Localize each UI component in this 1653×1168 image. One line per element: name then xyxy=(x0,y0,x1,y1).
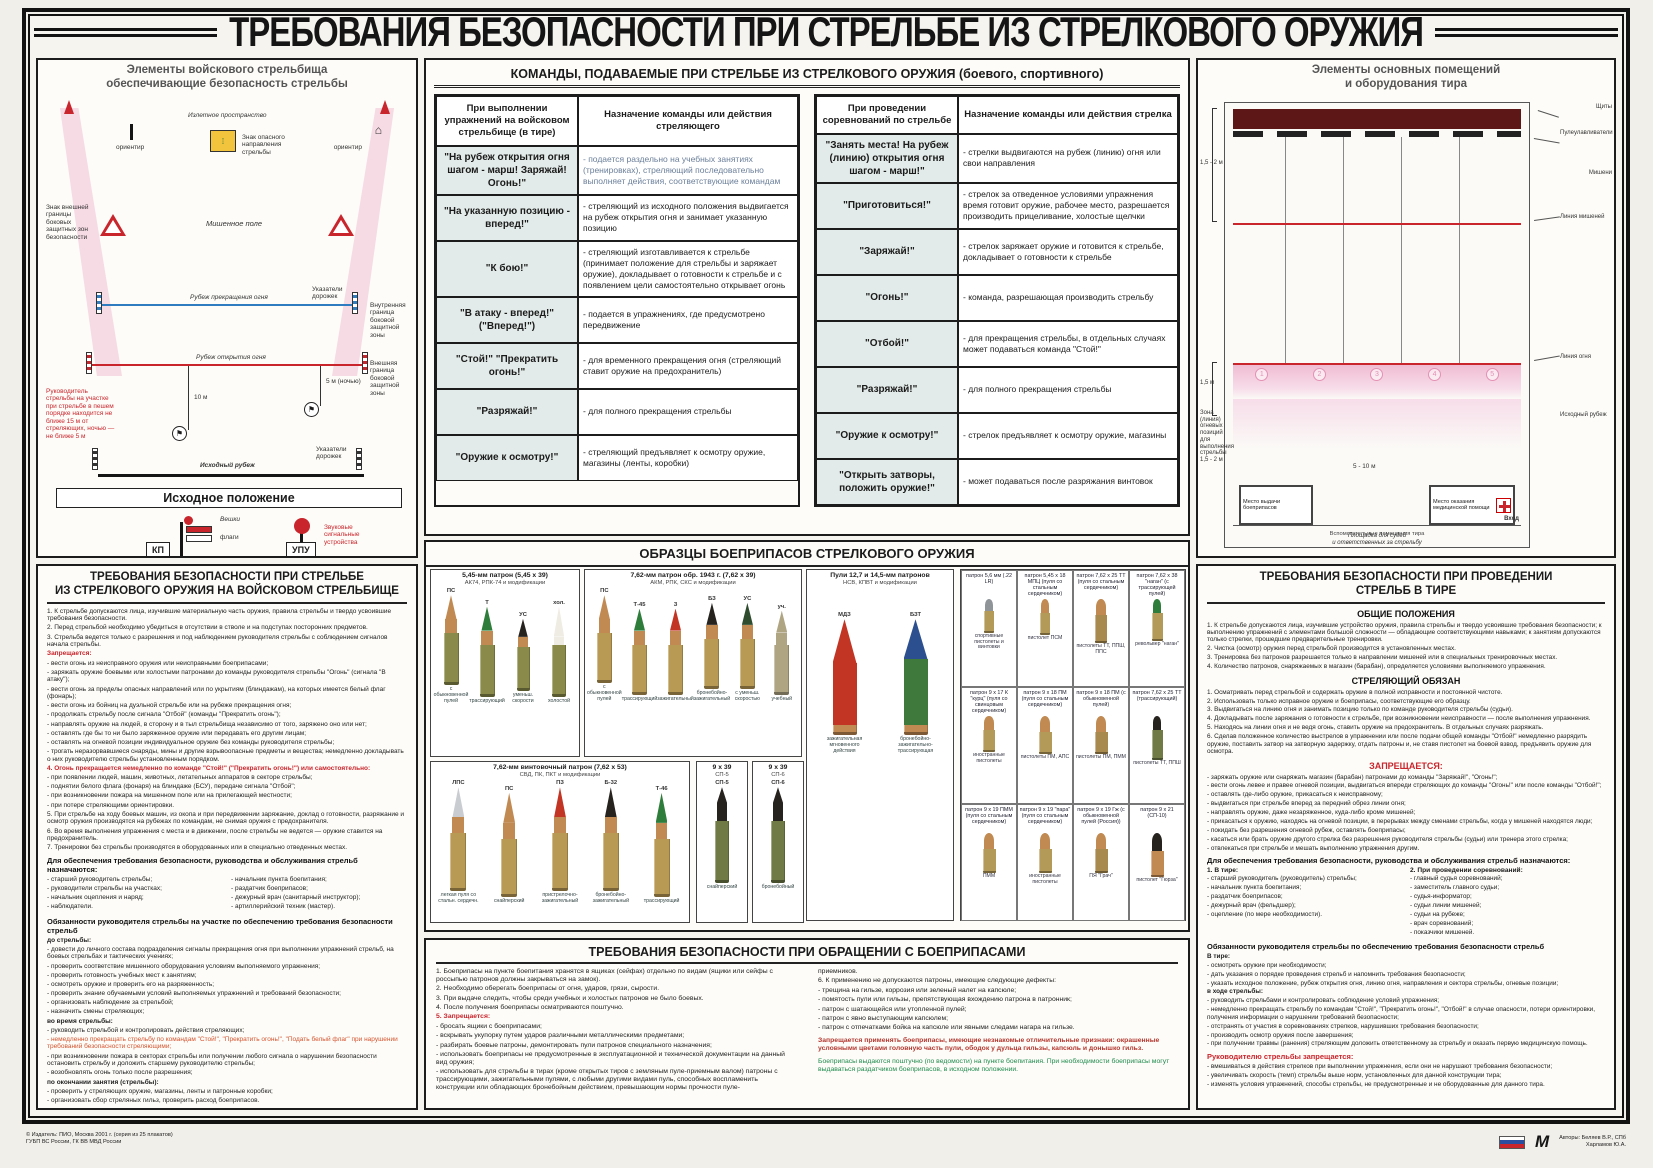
targets-row xyxy=(1233,131,1521,137)
cartridge: СП-5 снайперский xyxy=(699,780,745,891)
ammo-panel-9x39-sp6: 9 х 39 СП-6 СП-6 бронебойный xyxy=(752,761,804,923)
rule-line: 1. К стрельбе допускаются лица, изучивши… xyxy=(47,608,407,623)
duty-line: - назначить смены стреляющих; xyxy=(47,1008,407,1016)
label-start-line: Исходный рубеж xyxy=(200,462,255,469)
label-danger-sign: Знак опасного направления стрельбы xyxy=(242,134,306,156)
range-rules-section: ТРЕБОВАНИЯ БЕЗОПАСНОСТИ ПРИ СТРЕЛЬБЕ ИЗ … xyxy=(36,564,418,1110)
cartridge-row: СП-6 бронебойный xyxy=(755,780,801,891)
pistol-cartridge-cell: патрон 7,62 х 25 ТТ (трассирующий) писто… xyxy=(1129,687,1185,804)
pistol-cartridge-cell: патрон 9 х 19 ПММ (пуля со стальным серд… xyxy=(961,804,1017,921)
assign-item: - начальник пункта боепитания; xyxy=(1207,884,1402,891)
command-cell: "Стой!" "Прекратить огонь!" xyxy=(436,343,578,389)
duty-line: - организовать сбор стреляных гильз, про… xyxy=(47,1097,407,1105)
cease-line-post-left xyxy=(96,292,102,314)
rule-line: - вести огонь за пределы опасных направл… xyxy=(47,686,407,701)
rule-line: 3. Выдвигаться на линию огня и занимать … xyxy=(1207,706,1605,713)
label-bullet-traps: Пулеулавливатели xyxy=(1560,130,1612,137)
bullet-sample: МДЗ зажигательная мгновенного действия xyxy=(809,612,880,754)
duties-list: до стрельбы:- довести до личного состава… xyxy=(47,937,407,1105)
duty-line: - проверить соответствие мишенного обору… xyxy=(47,963,407,971)
cartridge-row: ПС с обыкновенной пулей Т-45 xyxy=(587,588,799,702)
rule-line: - отвлекаться при стрельбе и мешать выпо… xyxy=(1207,845,1605,852)
fire-direction-arrow-right xyxy=(380,100,390,114)
rule-line: - продолжать стрельбу после сигнала "Отб… xyxy=(47,711,407,719)
cartridge: Т-45 трассирующий xyxy=(622,602,658,703)
cartridge: ПЗ пристрелочно-зажигательный xyxy=(535,780,586,904)
rule-line: - оставлять где-либо оружие, прикасаться… xyxy=(1207,791,1605,798)
commands-table-range: При выполнении упражнений на войсковом с… xyxy=(434,94,800,507)
assign-item: - старший руководитель стрельбы; xyxy=(47,876,223,884)
red-cross-icon xyxy=(1496,498,1511,513)
duty-line: во время стрельбы: xyxy=(47,1018,407,1026)
duty-line: - дать указания о порядке проведения стр… xyxy=(1207,971,1605,978)
label-outer-sign: Знак внешней границы боковых защитных зо… xyxy=(46,204,98,241)
tir-rules-title: ТРЕБОВАНИЯ БЕЗОПАСНОСТИ ПРИ ПРОВЕДЕНИИ С… xyxy=(1207,571,1605,599)
duty-line: - осмотреть оружие и проверить его на ра… xyxy=(47,981,407,989)
command-desc-cell: - для полного прекращения стрельбы xyxy=(578,389,798,435)
command-cell: "В атаку - вперед!" ("Вперед!") xyxy=(436,297,578,343)
lane-divider xyxy=(1459,137,1460,363)
label-flags: флаги xyxy=(220,534,239,541)
assign-title-tir: Для обеспечения требования безопасности,… xyxy=(1207,856,1605,865)
cartridge-row: ПС с обыкновенной пулей Т xyxy=(433,588,577,704)
rule-line: - оставлять на огневой позиции индивидуа… xyxy=(47,739,407,747)
duty-line: В тире: xyxy=(1207,953,1605,960)
fire-direction-arrow-left xyxy=(64,100,74,114)
start-line-post-right xyxy=(356,448,362,470)
pistol-cartridge-cell: патрон 9 х 19 Гж (с обыкновенной пулей (… xyxy=(1073,804,1129,921)
assign-col-competition: 2. При проведении соревнований: - главны… xyxy=(1410,867,1605,937)
rule-line: 4. Докладывать после заряжания о готовно… xyxy=(1207,715,1605,722)
duty-line: - производить осмотр оружия после заверш… xyxy=(1207,1032,1605,1039)
lane-number: 4 xyxy=(1428,368,1441,381)
poster: ТРЕБОВАНИЯ БЕЗОПАСНОСТИ ПРИ СТРЕЛЬБЕ ИЗ … xyxy=(0,0,1653,1168)
cartridge: ПС с обыкновенной пулей xyxy=(433,588,469,704)
range-rules-intro: 1. К стрельбе допускаются лица, изучивши… xyxy=(47,608,407,852)
label-orientir-left: ориентир xyxy=(116,144,144,151)
publisher-info: © Издатель: ПИО, Москва 2001 г. (серия и… xyxy=(26,1132,173,1146)
label-outer-border: Внешняя граница боковой защитной зоны xyxy=(370,360,414,397)
command-cell: "Оружие к осмотру!" xyxy=(436,435,578,481)
ammo-samples-section: ОБРАЗЦЫ БОЕПРИПАСОВ СТРЕЛКОВОГО ОРУЖИЯ 5… xyxy=(424,540,1190,932)
dimension-10m-line xyxy=(188,366,189,430)
label-target-line: Линия мишеней xyxy=(1560,214,1612,221)
shooter-icon-2: ⚑ xyxy=(304,402,319,417)
start-line-post-left xyxy=(92,448,98,470)
pistol-cartridge-cell: патрон 9 х 17 К "курц" (пуля со свинцовы… xyxy=(961,687,1017,804)
cartridge: хол. холостой xyxy=(541,600,577,705)
start-position-banner: Исходное положение xyxy=(56,488,402,508)
lane-number: 5 xyxy=(1486,368,1499,381)
rule-line: - касаться или брать оружие другого стре… xyxy=(1207,836,1605,843)
tir-rules-section: ТРЕБОВАНИЯ БЕЗОПАСНОСТИ ПРИ ПРОВЕДЕНИИ С… xyxy=(1196,564,1616,1110)
ban-list: - заряжать оружие или снаряжать магазин … xyxy=(1207,774,1605,853)
dimension-5m-line xyxy=(320,366,321,406)
command-desc-cell: - может подаваться после разряжания винт… xyxy=(958,459,1178,505)
duty-line: - довести до личного состава подразделен… xyxy=(47,946,407,961)
rule-line: 7. Тренировки без стрельбы производятся … xyxy=(47,844,407,852)
assign-item: - дежурный врач (санитарный инструктор); xyxy=(231,894,407,902)
ammo-panel-heavy: Пули 12,7 и 14,5-мм патронов НСВ, КПВТ и… xyxy=(806,569,954,921)
handling-line: 5. Запрещается: xyxy=(436,1013,796,1021)
handling-line: 3. При выдаче следить, чтобы среди учебн… xyxy=(436,995,796,1003)
label-10m: 10 м xyxy=(194,394,208,401)
command-cell: "Заряжай!" xyxy=(816,229,958,275)
label-orientir-right: ориентир xyxy=(334,144,362,151)
assign-item: - начальник оцепления и наряд; xyxy=(47,894,223,902)
flags-icon xyxy=(186,526,212,544)
duties-title-tir: Обязанности руководителя стрельбы по обе… xyxy=(1207,942,1605,951)
shooter-icon-1: ⚑ xyxy=(172,426,187,441)
rule-line: - направлять оружие, даже незаряженное, … xyxy=(1207,809,1605,816)
command-cell: "Занять места! На рубеж (линию) открытия… xyxy=(816,134,958,183)
ammo-panel-762x39: 7,62-мм патрон обр. 1943 г. (7,62 х 39) … xyxy=(584,569,802,757)
pistol-cartridge-cell: патрон 9 х 18 ПМ (пуля со стальным серде… xyxy=(1017,687,1073,804)
pistol-cartridge-cell: патрон 9 х 21 (СП-10) пистолет "Гюрза" xyxy=(1129,804,1185,921)
pistol-cartridge-cell: патрон 7,62 х 25 ТТ (пуля со стальным се… xyxy=(1073,570,1129,687)
ammo-handling-title: ТРЕБОВАНИЯ БЕЗОПАСНОСТИ ПРИ ОБРАЩЕНИИ С … xyxy=(436,943,1178,964)
ammo-header: ОБРАЗЦЫ БОЕПРИПАСОВ СТРЕЛКОВОГО ОРУЖИЯ xyxy=(426,542,1188,567)
command-cell: "Приготовиться!" xyxy=(816,183,958,229)
ammo-issue-room: Место выдачи боеприпасов xyxy=(1239,485,1313,525)
handling-line: 6. К применению не допускаются патроны, … xyxy=(818,977,1178,985)
command-desc-cell: - стрелок заряжает оружие и готовится к … xyxy=(958,229,1178,275)
column-header: При проведении соревнований по стрельбе xyxy=(816,96,958,134)
command-cell: "Оружие к осмотру!" xyxy=(816,413,958,459)
forbid-line: - увеличивать скорость (темп) стрельбы в… xyxy=(1207,1072,1605,1079)
label-targets: Мишени xyxy=(1589,170,1612,177)
forbid-list-tir: - вмешиваться в действия стрелков при вы… xyxy=(1207,1063,1605,1088)
cartridge: З зажигательный xyxy=(657,602,693,703)
handling-line: - разбирать боевые патроны, демонтироват… xyxy=(436,1042,796,1050)
assign-item: - артиллерийский техник (мастер). xyxy=(231,903,407,911)
assign-item: - судья-информатор; xyxy=(1410,893,1605,900)
rule-line: 5. Находясь на линии огня и не ведя огон… xyxy=(1207,724,1605,731)
cease-fire-line xyxy=(102,304,358,306)
label-entry: Вход xyxy=(1504,516,1519,523)
russian-flag-icon xyxy=(1499,1136,1525,1149)
duty-line: - немедленно прекращать стрельбу по кома… xyxy=(1207,1006,1605,1021)
command-desc-cell: - стреляющий предъявляет к осмотру оружи… xyxy=(578,435,798,481)
cartridge-row: СП-5 снайперский xyxy=(699,780,745,891)
assign-columns-tir: 1. В тире: - старший руководитель (руков… xyxy=(1207,867,1605,937)
assign-item: - старший руководитель (руководитель) ст… xyxy=(1207,875,1402,882)
cartridge-row: МДЗ зажигательная мгновенного действия Б… xyxy=(809,612,951,754)
command-desc-cell: - для полного прекращения стрельбы xyxy=(958,367,1178,413)
handling-line: 1. Боеприпасы на пункте боепитания храня… xyxy=(436,968,796,984)
command-cell: "Открыть затворы, положить оружие!" xyxy=(816,459,958,505)
command-desc-cell: - для временного прекращения огня (стрел… xyxy=(578,343,798,389)
rule-line: - прикасаться к оружию, находясь на огне… xyxy=(1207,818,1605,825)
poster-title-row: ТРЕБОВАНИЯ БЕЗОПАСНОСТИ ПРИ СТРЕЛЬБЕ ИЗ … xyxy=(34,14,1618,50)
lane-number: 1 xyxy=(1255,368,1268,381)
handling-line: - трещина на гильзе, коррозия или зелены… xyxy=(818,987,1178,995)
label-veshki: Вешки xyxy=(220,516,240,523)
column-header: Назначение команды или действия стрелка xyxy=(958,96,1178,134)
duty-line: - при возникновении пожара в секторах ст… xyxy=(47,1053,407,1068)
title-rule-left xyxy=(34,28,217,37)
duties-title: Обязанности руководителя стрельбы на уча… xyxy=(47,917,407,935)
commands-tables: При выполнении упражнений на войсковом с… xyxy=(434,94,1180,507)
upu-box: УПУ xyxy=(286,542,316,558)
command-desc-cell: - стрелки выдвигаются на рубеж (линию) о… xyxy=(958,134,1178,183)
rule-line: 3. Стрельба ведется только с разрешения … xyxy=(47,634,407,649)
orientir-post-icon xyxy=(130,124,133,140)
cartridge: ПС снайперский xyxy=(484,786,535,905)
command-cell: "Отбой!" xyxy=(816,321,958,367)
rule-line: - оставлять где бы то ни было заряженное… xyxy=(47,730,407,738)
start-line xyxy=(98,474,364,477)
label-1_5m: 1,5 м xyxy=(1200,380,1214,387)
duty-line: - возобновлять огонь только после разреш… xyxy=(47,1069,407,1077)
firing-positions-band: 12345 xyxy=(1233,365,1521,399)
publisher-logo-m: М xyxy=(1535,1132,1549,1152)
command-desc-cell: - команда, разрешающая производить стрел… xyxy=(958,275,1178,321)
command-desc-cell: - подается раздельно на учебных занятиях… xyxy=(578,146,798,195)
command-desc-cell: - стрелок предъявляет к осмотру оружие, … xyxy=(958,413,1178,459)
duty-line: - немедленно прекращать стрельбу по кома… xyxy=(47,1036,407,1051)
lane-number: 2 xyxy=(1313,368,1326,381)
tir-diagram-title: Элементы основных помещений и оборудован… xyxy=(1198,64,1614,92)
rule-line: - направлять оружие на людей, в сторону … xyxy=(47,721,407,729)
rule-line: - вести огонь левее и правее огневой поз… xyxy=(1207,782,1605,789)
danger-direction-sign-icon: ⁞ xyxy=(210,130,236,152)
label-firing-zone-note: Зона (линия) огневых позиций для выполне… xyxy=(1200,410,1224,464)
duty-line: по окончании занятия (стрельбы): xyxy=(47,1079,407,1087)
ammo-panel-9x39-sp5: 9 х 39 СП-5 СП-5 снайперский xyxy=(696,761,748,923)
command-cell: "Огонь!" xyxy=(816,275,958,321)
divider xyxy=(1207,602,1605,604)
duty-line: - руководить стрельбой и контролировать … xyxy=(47,1027,407,1035)
command-desc-cell: - стреляющий из исходного положения выдв… xyxy=(578,195,798,241)
tir-diagram-section: Элементы основных помещений и оборудован… xyxy=(1196,58,1616,558)
open-line-post-right xyxy=(362,352,368,374)
rule-line: 4. Количество патронов, снаряжаемых в ма… xyxy=(1207,663,1605,670)
forbid-title-tir: Руководителю стрельбы запрещается: xyxy=(1207,1052,1605,1061)
handling-line: Боеприпасы выдаются поштучно (по ведомос… xyxy=(818,1058,1178,1074)
cartridge: СП-6 бронебойный xyxy=(755,780,801,891)
pistol-cartridge-cell: патрон 5,45 х 18 МПЦ (пуля со стальным с… xyxy=(1017,570,1073,687)
flag-ball-icon xyxy=(184,516,193,525)
assign-item: - врач соревнований; xyxy=(1410,920,1605,927)
label-5m: 5 м (ночью) xyxy=(326,378,361,385)
open-fire-line xyxy=(92,364,368,366)
left-safety-zone xyxy=(56,108,122,376)
callout-line xyxy=(1538,110,1559,118)
rule-line: Запрещается: xyxy=(47,650,407,658)
rule-line: 4. Огонь прекращается немедленно по кома… xyxy=(47,765,407,773)
handling-line: 4. После получения боеприпасы осматриваю… xyxy=(436,1004,796,1012)
pistol-ammo-grid: патрон 5,6 мм (.22 LR) спортивные пистол… xyxy=(960,569,1186,921)
cartridge: ЛПС легкая пуля со стальн. сердечн. xyxy=(433,780,484,904)
lane-number: 3 xyxy=(1370,368,1383,381)
assign-item: - руководители стрельбы на участках; xyxy=(47,885,223,893)
assign-item: - заместитель главного судьи; xyxy=(1410,884,1605,891)
dimension-bracket-2 xyxy=(1212,362,1217,416)
pistol-cartridge-cell: патрон 7,62 х 38 "наган" (с трассирующей… xyxy=(1129,570,1185,687)
handling-line: 2. Необходимо оберегать боеприпасы от ог… xyxy=(436,985,796,993)
assign-item: - раздатчик боеприпасов; xyxy=(231,885,407,893)
label-open-line: Рубеж открытия огня xyxy=(196,354,266,361)
handling-right-column: приемников.6. К применению не допускаютс… xyxy=(818,968,1178,1093)
rule-line: 3. Тренировка без патронов разрешается т… xyxy=(1207,654,1605,661)
handling-line: Запрещается применять боеприпасы, имеющи… xyxy=(818,1037,1178,1053)
column-header: При выполнении упражнений на войсковом с… xyxy=(436,96,578,146)
pistol-cartridge-cell: патрон 9 х 19 "пара" (пуля со стальным с… xyxy=(1017,804,1073,921)
callout-line xyxy=(1534,355,1560,360)
cease-line-post-right xyxy=(352,292,358,314)
rule-line: - трогать неразорвавшиеся снаряды, мины … xyxy=(47,748,407,763)
duties-list-tir: В тире:- осмотреть оружие при необходимо… xyxy=(1207,953,1605,1048)
range-diagram-title: Элементы войскового стрельбища обеспечив… xyxy=(38,64,416,92)
assign-item: - оцепление (по мере необходимости). xyxy=(1207,911,1402,918)
rule-line: - при потере стреляющими ориентировки. xyxy=(47,802,407,810)
label-range-note: Руководитель стрельбы на участке при стр… xyxy=(46,388,118,440)
aux-rooms-strip: Вспомогательные помещения тира xyxy=(1233,525,1521,541)
rule-line: 6. Сделав положенное количество выстрело… xyxy=(1207,733,1605,755)
rule-line: 2. Чистка (осмотр) оружия перед стрельбо… xyxy=(1207,645,1605,652)
lane-divider xyxy=(1401,137,1402,363)
cartridge: Т трассирующий xyxy=(469,600,505,705)
pistol-cartridge-cell: патрон 9 х 18 ПМ (с обыкновенной пулей) … xyxy=(1073,687,1129,804)
duty-line: до стрельбы: xyxy=(47,937,407,945)
commands-header: КОМАНДЫ, ПОДАВАЕМЫЕ ПРИ СТРЕЛЬБЕ ИЗ СТРЕ… xyxy=(434,64,1180,88)
zone-border-sign-right-icon xyxy=(328,214,354,236)
command-desc-cell: - стрелок за отведенное условиями упражн… xyxy=(958,183,1178,229)
general-title: ОБЩИЕ ПОЛОЖЕНИЯ xyxy=(1207,609,1605,619)
lane-divider xyxy=(1343,137,1344,363)
divider xyxy=(47,602,407,604)
pistol-cartridge-cell: патрон 5,6 мм (.22 LR) спортивные пистол… xyxy=(961,570,1017,687)
label-lane-pointers: Указатели дорожек xyxy=(312,286,350,301)
command-cell: "Разряжай!" xyxy=(436,389,578,435)
assign-item: - показчики мишеней. xyxy=(1410,929,1605,936)
assign-item: - судьи на рубеже; xyxy=(1410,911,1605,918)
rule-line: - выдвигаться при стрельбе вперед за пер… xyxy=(1207,800,1605,807)
rule-line: 6. Во время выполнения упражнения с мест… xyxy=(47,828,407,843)
range-rules-title: ТРЕБОВАНИЯ БЕЗОПАСНОСТИ ПРИ СТРЕЛЬБЕ ИЗ … xyxy=(47,571,407,599)
ammo-body: 5,45-мм патрон (5,45 х 39) АК74, РПК-74 … xyxy=(426,567,1188,927)
cartridge: Т-46 трассирующий xyxy=(636,786,687,905)
cartridge: УС с уменьш. скоростью xyxy=(730,596,764,702)
label-start-pointers: Указатели дорожек xyxy=(316,446,354,461)
assign-col-1: - старший руководитель стрельбы;- руково… xyxy=(47,876,223,913)
rule-line: 1. К стрельбе допускаются лица, изучивши… xyxy=(1207,622,1605,644)
bullet-sample: БЗТ бронебойно-зажигательно-трассирующая xyxy=(880,612,951,754)
forbid-line: - вмешиваться в действия стрелков при вы… xyxy=(1207,1063,1605,1070)
lane-divider xyxy=(1285,137,1286,363)
label-shields: Щиты xyxy=(1596,104,1612,111)
assign-item: - раздатчик боеприпасов; xyxy=(1207,893,1402,900)
command-desc-cell: - подается в упражнениях, где предусмотр… xyxy=(578,297,798,343)
cartridge: уч. учебный xyxy=(765,604,799,703)
assign-item: - судьи линии мишеней; xyxy=(1410,902,1605,909)
command-cell: "К бою!" xyxy=(436,241,578,297)
duty-line: - отстранять от участия в соревнованиях … xyxy=(1207,1023,1605,1030)
rule-line: 2. Перед стрельбой необходимо убедиться … xyxy=(47,624,407,632)
handling-line: - патрон с шатающейся или утопленной пул… xyxy=(818,1006,1178,1014)
commands-table-competition: При проведении соревнований по стрельбе … xyxy=(814,94,1180,507)
assign-col-tir: 1. В тире: - старший руководитель (руков… xyxy=(1207,867,1402,937)
bullet-trap-band xyxy=(1233,109,1521,129)
rule-line: - при появлении людей, машин, животных, … xyxy=(47,774,407,782)
assign-col-2: - начальник пункта боепитания;- раздатчи… xyxy=(231,876,407,913)
command-cell: "На указанную позицию - вперед!" xyxy=(436,195,578,241)
authors-info: Авторы: Беляев В.Р., СПб Харламов Ю.А. xyxy=(1559,1135,1626,1149)
assign-title: Для обеспечения требования безопасности,… xyxy=(47,856,407,874)
label-sound-devices: Звуковые сигнальные устройства xyxy=(324,524,384,546)
assign-item: - начальник пункта боепитания; xyxy=(231,876,407,884)
rule-line: - при возникновении пожара на мишенном п… xyxy=(47,792,407,800)
handling-line: - патрон с отпечатками бойка на капсюле … xyxy=(818,1024,1178,1032)
ammo-panel-rifle: 7,62-мм винтовочный патрон (7,62 х 53) С… xyxy=(430,761,690,923)
assign-item: - дежурный врач (фельдшер); xyxy=(1207,902,1402,909)
general-list: 1. К стрельбе допускаются лица, изучивши… xyxy=(1207,622,1605,671)
ammo-panel-545: 5,45-мм патрон (5,45 х 39) АК74, РПК-74 … xyxy=(430,569,580,757)
handling-line: - использовать для стрельбы в тирах (кро… xyxy=(436,1068,796,1092)
range-diagram-section: Элементы войскового стрельбища обеспечив… xyxy=(36,58,418,558)
label-fire-line: Линия огня xyxy=(1560,354,1612,361)
medical-room: Место оказания медицинской помощи xyxy=(1429,485,1515,525)
house-icon: ⌂ xyxy=(375,124,382,138)
duty-line: - руководить стрельбами и контролировать… xyxy=(1207,997,1605,1004)
rule-line: 5. При стрельбе на ходу боевых машин, из… xyxy=(47,811,407,826)
duty-line: - проверить готовность учебных мест к за… xyxy=(47,972,407,980)
footer: © Издатель: ПИО, Москва 2001 г. (серия и… xyxy=(26,1132,1626,1152)
cartridge: УС уменьш. скорости xyxy=(505,612,541,704)
zone-border-sign-left-icon xyxy=(100,214,126,236)
kp-box: КП xyxy=(146,542,170,558)
title-rule-right xyxy=(1435,28,1618,37)
duty-line: - осмотреть оружие при необходимости; xyxy=(1207,962,1605,969)
shooter-duty-list: 1. Осматривать перед стрельбой и содержа… xyxy=(1207,689,1605,756)
duty-line: - указать исходное положение, рубеж откр… xyxy=(1207,980,1605,987)
handling-left-column: 1. Боеприпасы на пункте боепитания храня… xyxy=(436,968,796,1093)
duty-line: - проверить у стреляющих оружие, магазин… xyxy=(47,1088,407,1096)
duty-line: - при получении травмы (ранения) стреляю… xyxy=(1207,1040,1605,1047)
label-start-line-tir: Исходный рубеж xyxy=(1560,412,1612,419)
label-5-10m: 5 - 10 м xyxy=(1353,463,1376,470)
column-header: Назначение команды или действия стреляющ… xyxy=(578,96,798,146)
rule-line: - вести огонь из неисправного оружия или… xyxy=(47,660,407,668)
flag-pole-icon xyxy=(180,522,183,556)
firing-zone-fade xyxy=(1233,399,1521,449)
poster-title: ТРЕБОВАНИЯ БЕЗОПАСНОСТИ ПРИ СТРЕЛЬБЕ ИЗ … xyxy=(229,8,1423,56)
callout-line xyxy=(1534,216,1560,221)
duty-line: в ходе стрельбы: xyxy=(1207,988,1605,995)
shooter-duty-title: СТРЕЛЯЮЩИЙ ОБЯЗАН xyxy=(1207,676,1605,686)
forbid-title: Руководителю стрельбы запрещается: xyxy=(47,1109,407,1110)
open-line-post-left xyxy=(86,352,92,374)
target-line xyxy=(1233,223,1521,225)
rule-line: - покидать без разрешения огневой рубеж,… xyxy=(1207,827,1605,834)
rule-line: - заряжать оружие боевыми или холостыми … xyxy=(47,669,407,684)
label-cease-line: Рубеж прекращения огня xyxy=(190,294,268,301)
label-inner-border: Внутренняя граница боковой защитной зоны xyxy=(370,302,414,339)
command-cell: "На рубеж открытия огня шагом - марш! За… xyxy=(436,146,578,195)
handling-line: - помятость пули или гильзы, препятствую… xyxy=(818,996,1178,1004)
label-izlet: Излетное пространство xyxy=(188,112,267,119)
command-cell: "Разряжай!" xyxy=(816,367,958,413)
cartridge-row: ЛПС легкая пуля со стальн. сердечн. ПС xyxy=(433,780,687,904)
handling-line: - использовать боеприпасы не предусмотре… xyxy=(436,1051,796,1067)
label-target-field: Мишенное поле xyxy=(206,220,262,229)
ban-title: ЗАПРЕЩАЕТСЯ: xyxy=(1207,761,1605,771)
rule-line: - заряжать оружие или снаряжать магазин … xyxy=(1207,774,1605,781)
handling-line: - вскрывать укупорку путем ударов различ… xyxy=(436,1032,796,1040)
handling-line: приемников. xyxy=(818,968,1178,976)
duty-line: - проверить знание обучаемыми условий вы… xyxy=(47,990,407,998)
